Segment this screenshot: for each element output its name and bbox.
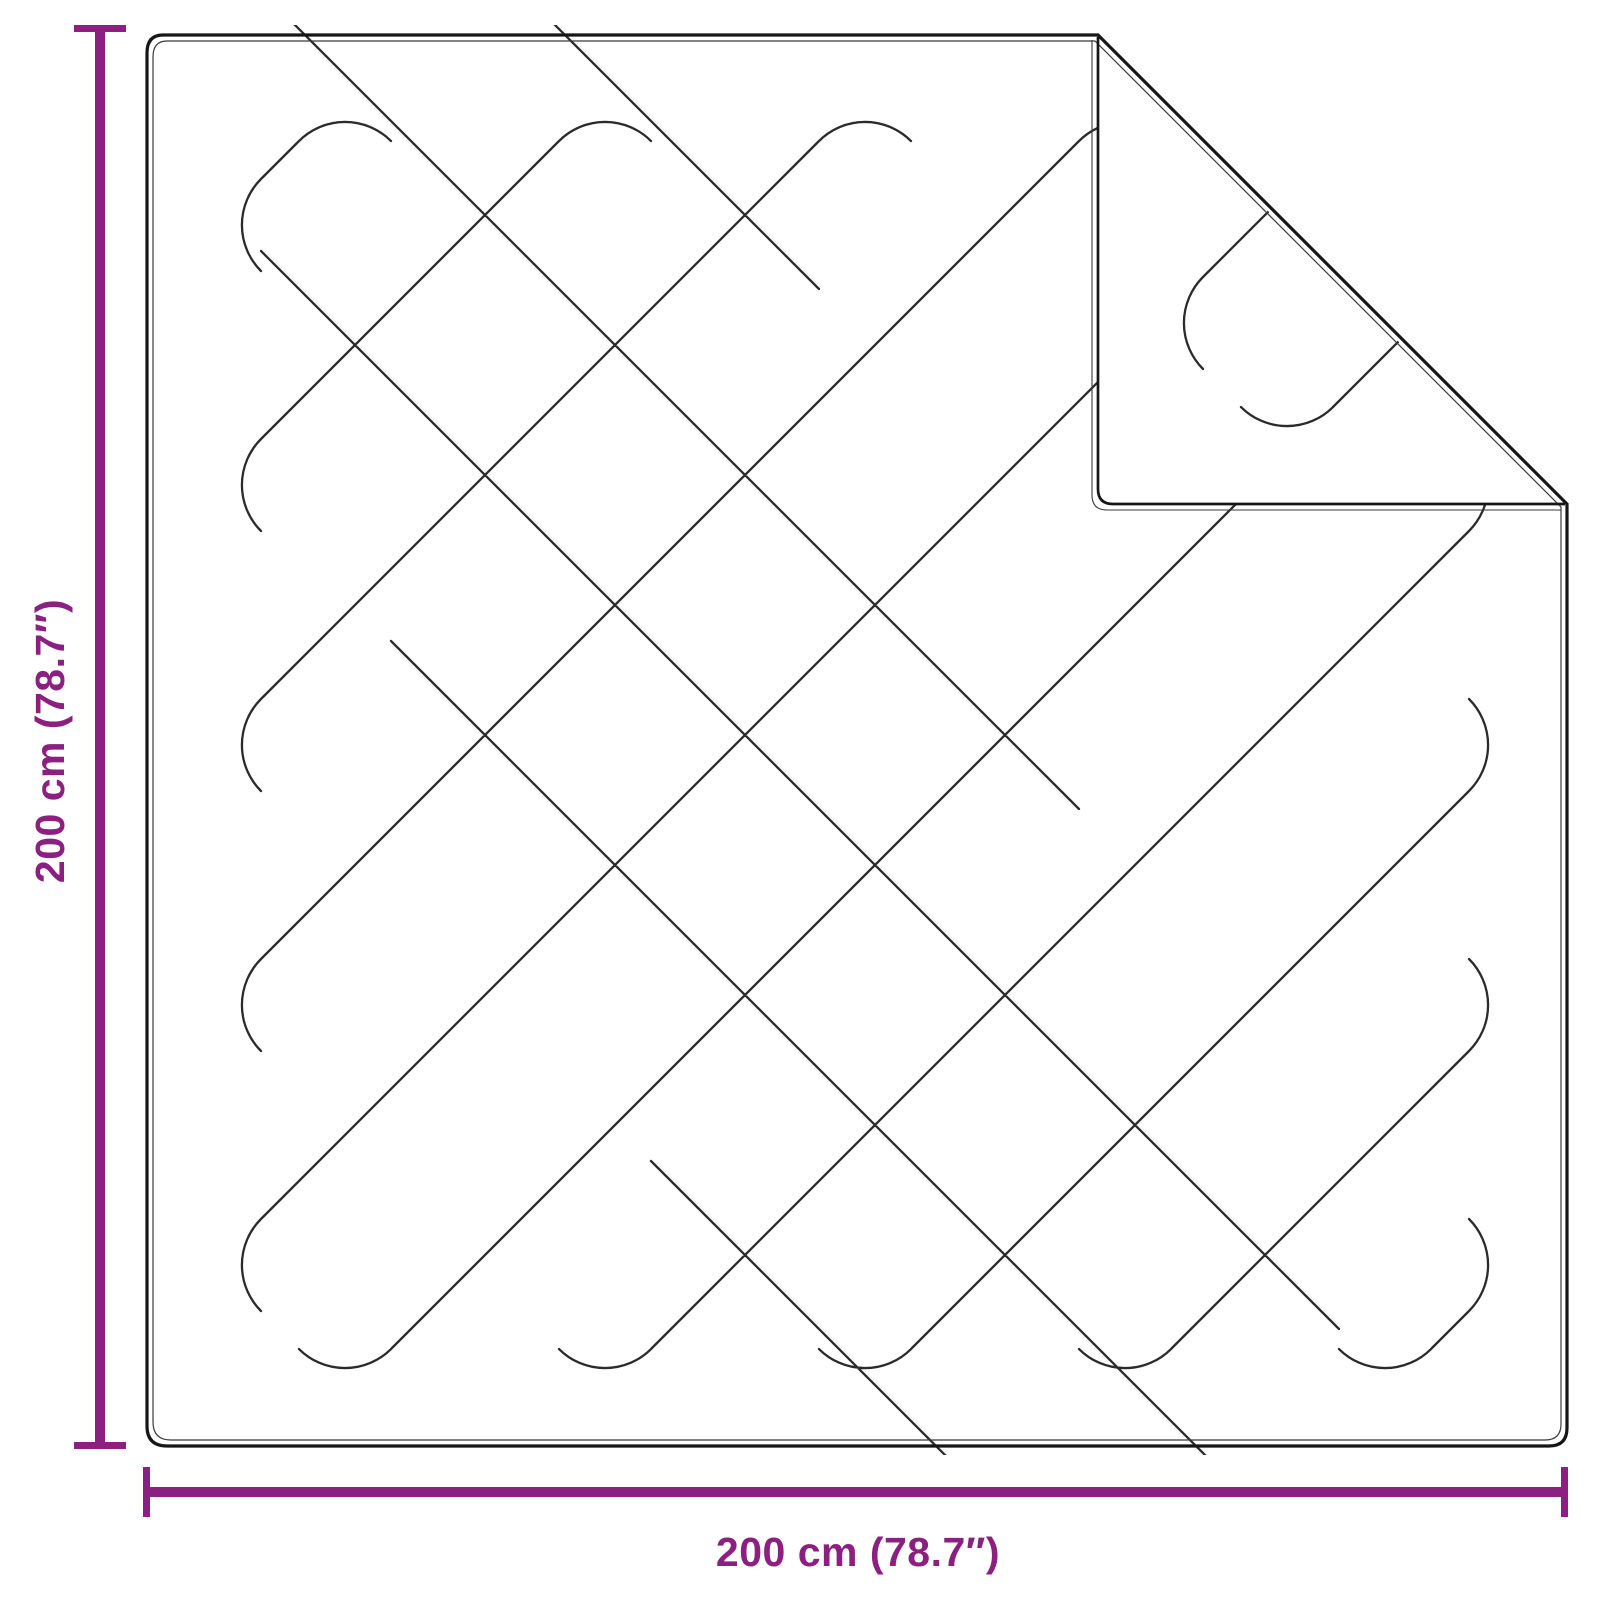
product-dimension-diagram: 200 cm (78.7″) 200 cm (78.7″) [0, 0, 1600, 1600]
height-dimension-top-cap [74, 25, 126, 32]
height-dimension-bottom-cap [74, 1442, 126, 1449]
width-dimension-right-cap [1561, 1467, 1568, 1517]
diagram-canvas: 200 cm (78.7″) 200 cm (78.7″) [0, 0, 1600, 1600]
height-dimension: 200 cm (78.7″) [27, 25, 126, 1449]
blanket-body-fill [147, 35, 1567, 1446]
width-dimension-left-cap [143, 1467, 150, 1517]
height-dimension-label: 200 cm (78.7″) [27, 599, 73, 883]
width-dimension-label: 200 cm (78.7″) [716, 1529, 1000, 1575]
width-dimension: 200 cm (78.7″) [143, 1467, 1568, 1575]
